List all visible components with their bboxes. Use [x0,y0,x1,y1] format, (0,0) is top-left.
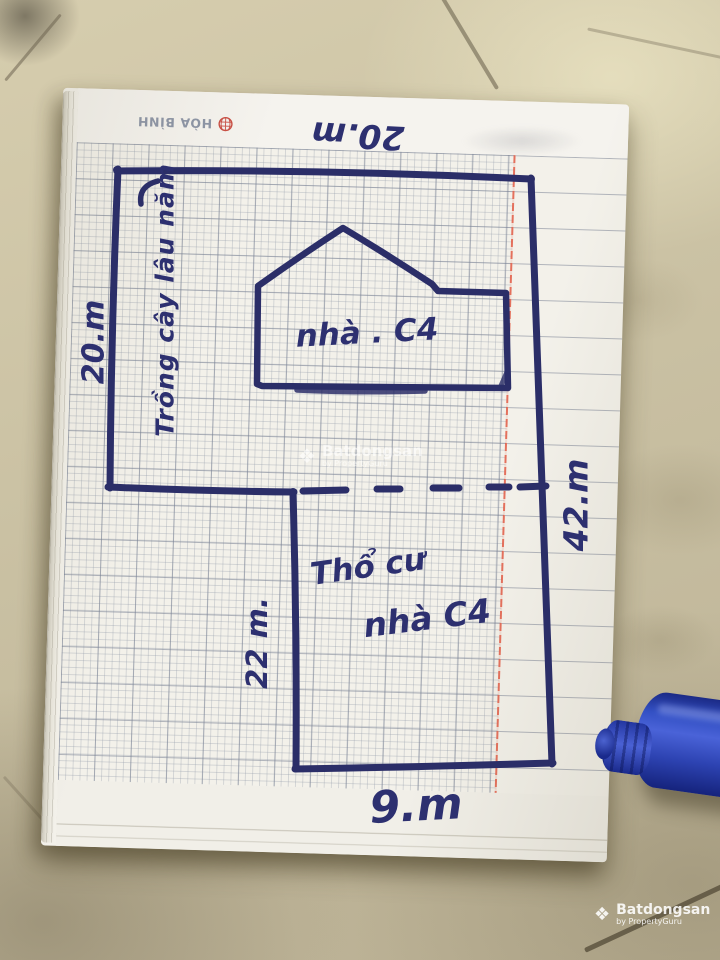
dim-inner-label: 22 m. [240,597,274,689]
dim-right-label: 42.m [557,459,596,552]
ink-bleed-smudge [462,126,582,156]
dim-left-label: 20.m [77,300,112,384]
hoabinh-logo-icon [218,116,233,131]
brand-hoabinh: HÒA BÌNH [137,114,233,132]
brand-label: HÒA BÌNH [137,114,212,131]
watermark-brand: Batdongsan [322,444,423,460]
batdongsan-diamond-icon: ❖ [594,906,610,924]
graph-grid-area [58,142,515,793]
watermark-brand: Batdongsan [616,903,710,918]
watermark-sub: by PropertyGuru [322,460,423,468]
center-watermark: ❖ Batdongsan by PropertyGuru [298,444,423,468]
corner-watermark: ❖ Batdongsan by PropertyGuru [594,903,710,926]
dim-top-label: 20.m [311,114,406,158]
photo-scene: HÒA BÌNH [0,0,720,960]
watermark-sub: by PropertyGuru [616,918,710,926]
pen-cap [592,682,720,819]
dim-bottom-label: 9.m [368,778,464,834]
batdongsan-diamond-icon: ❖ [298,446,316,466]
zone-upper-label: Trồng cây lâu năm [151,163,180,437]
house-label: nhà . C4 [295,311,439,354]
notebook-page: HÒA BÌNH [41,88,629,862]
tile-corner-shadow [0,0,80,66]
